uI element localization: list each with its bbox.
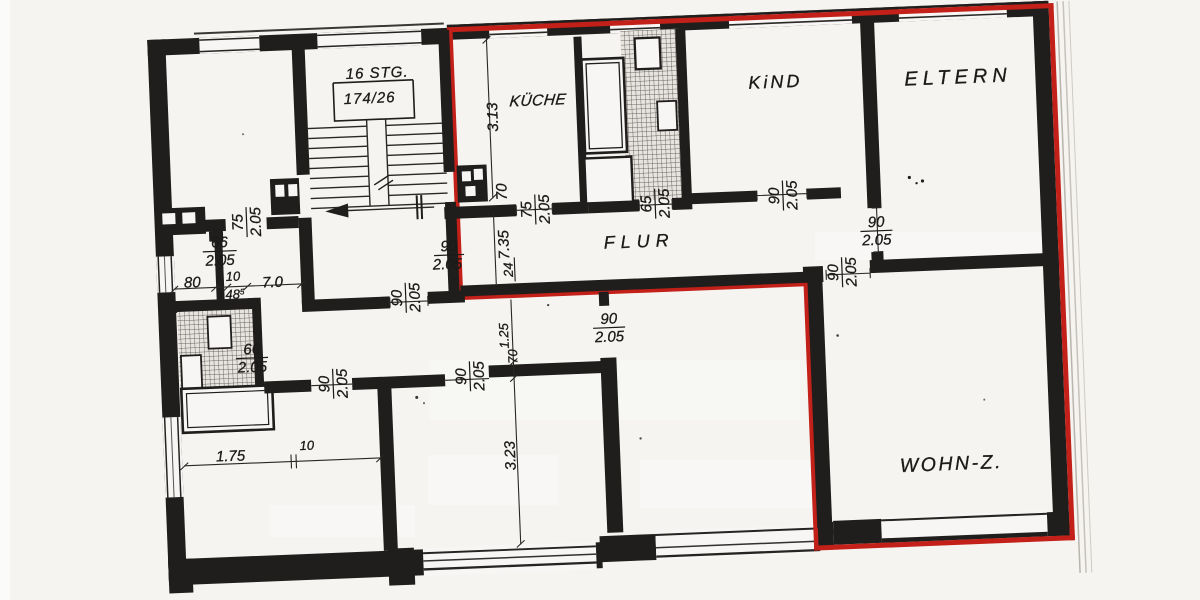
svg-text:2.05: 2.05 [406, 282, 424, 314]
svg-text:7.35: 7.35 [495, 229, 513, 260]
svg-text:2.05: 2.05 [656, 188, 674, 220]
svg-text:2.05: 2.05 [594, 328, 626, 346]
svg-text:66: 66 [243, 341, 261, 359]
svg-text:2.05: 2.05 [842, 256, 860, 288]
svg-text:ELTERN: ELTERN [904, 64, 1012, 90]
svg-text:90: 90 [600, 310, 618, 328]
svg-text:90: 90 [440, 238, 458, 256]
svg-text:2.05: 2.05 [334, 368, 352, 400]
svg-text:75: 75 [229, 213, 247, 231]
svg-text:2.05: 2.05 [204, 252, 236, 270]
svg-text:65: 65 [638, 195, 656, 213]
svg-text:174/26: 174/26 [343, 89, 396, 108]
svg-text:70: 70 [505, 348, 521, 364]
svg-text:24: 24 [500, 262, 516, 278]
svg-text:2.05: 2.05 [783, 180, 801, 212]
svg-text:90: 90 [316, 375, 334, 393]
svg-text:FLUR: FLUR [603, 230, 675, 253]
svg-text:10: 10 [299, 438, 315, 454]
svg-text:7.0: 7.0 [262, 274, 284, 292]
svg-text:1.75: 1.75 [216, 447, 247, 465]
svg-text:75: 75 [518, 201, 536, 219]
svg-text:10: 10 [225, 268, 241, 284]
svg-text:3.13: 3.13 [484, 102, 502, 133]
svg-text:90: 90 [867, 214, 885, 232]
svg-text:2.05: 2.05 [247, 206, 265, 238]
svg-text:90: 90 [453, 367, 471, 385]
svg-text:90: 90 [825, 263, 843, 281]
svg-text:WOHN-Z.: WOHN-Z. [899, 451, 1003, 477]
svg-text:KÜCHE: KÜCHE [509, 90, 568, 110]
svg-text:90: 90 [766, 187, 784, 205]
svg-text:90: 90 [388, 289, 406, 307]
svg-text:16 STG.: 16 STG. [345, 64, 408, 84]
svg-text:3.23: 3.23 [502, 440, 520, 471]
svg-text:80: 80 [184, 274, 202, 292]
svg-text:2.05: 2.05 [432, 255, 464, 273]
svg-text:2.05: 2.05 [236, 358, 268, 376]
svg-text:70: 70 [493, 183, 511, 201]
svg-text:2.05: 2.05 [536, 194, 554, 226]
svg-text:KiND: KiND [748, 71, 803, 93]
svg-text:1.25: 1.25 [496, 322, 512, 349]
svg-text:2.05: 2.05 [861, 231, 893, 249]
svg-text:66: 66 [211, 234, 229, 252]
svg-text:2.05: 2.05 [470, 360, 488, 392]
